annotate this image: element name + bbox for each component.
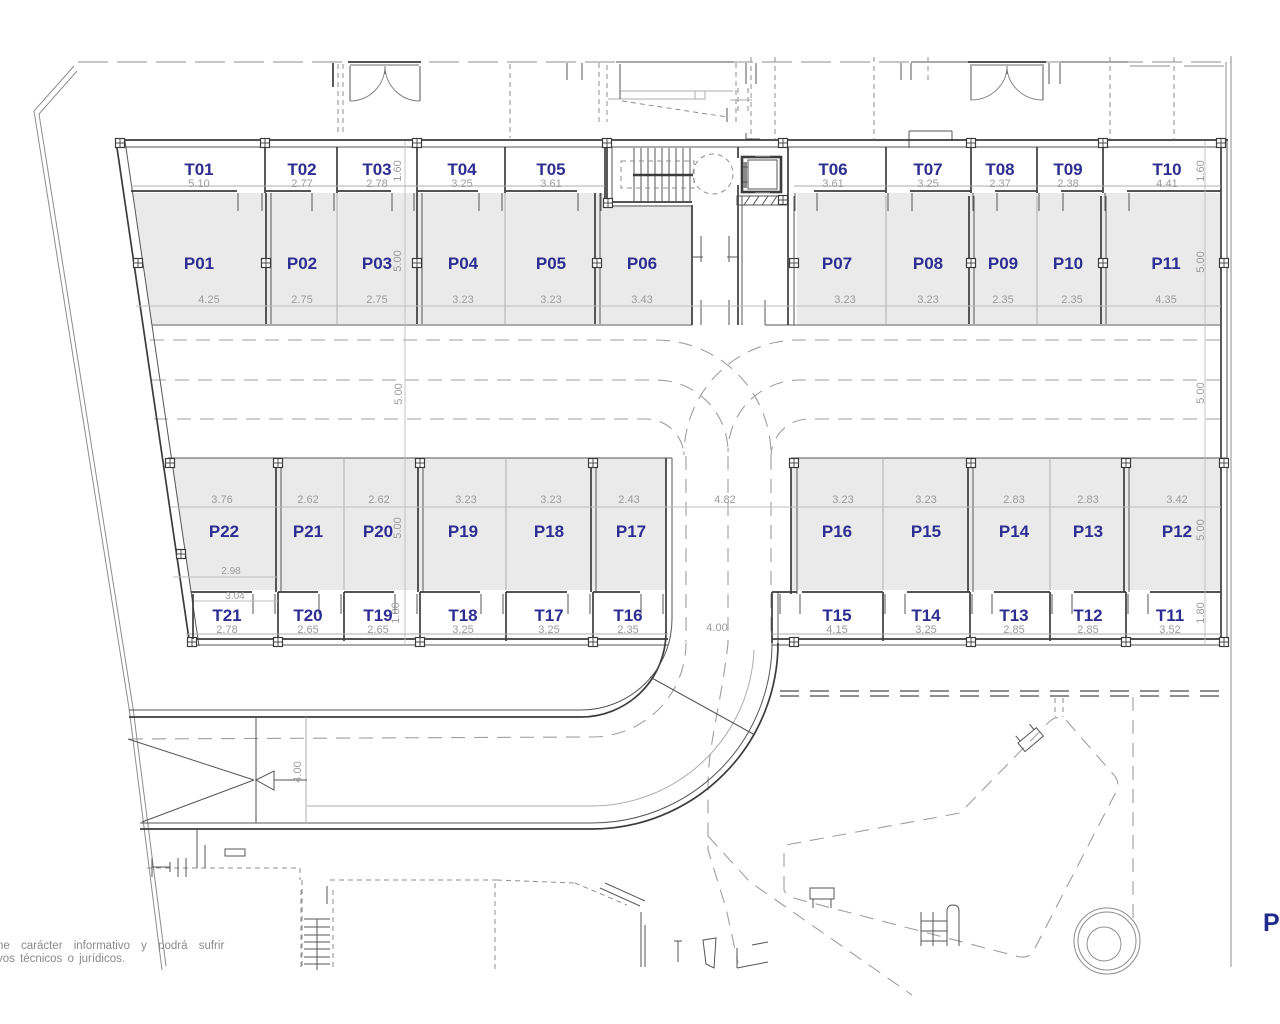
svg-text:4.35: 4.35 [1155, 294, 1176, 306]
svg-text:3.25: 3.25 [917, 178, 938, 190]
svg-text:P07: P07 [822, 254, 852, 273]
svg-text:3.25: 3.25 [452, 624, 473, 636]
svg-text:1.60: 1.60 [1195, 160, 1207, 181]
svg-text:3.25: 3.25 [451, 178, 472, 190]
svg-text:5.00: 5.00 [393, 383, 405, 404]
svg-text:T16: T16 [613, 606, 642, 625]
svg-text:2.35: 2.35 [617, 624, 638, 636]
svg-text:P22: P22 [209, 522, 239, 541]
svg-text:P04: P04 [448, 254, 479, 273]
svg-text:2.38: 2.38 [1057, 178, 1078, 190]
svg-text:1.80: 1.80 [1195, 602, 1207, 623]
svg-text:2.75: 2.75 [366, 294, 387, 306]
svg-text:2.77: 2.77 [291, 178, 312, 190]
svg-text:4.82: 4.82 [714, 494, 735, 506]
svg-text:2.98: 2.98 [221, 566, 241, 577]
svg-text:3.61: 3.61 [540, 178, 561, 190]
svg-text:P16: P16 [822, 522, 852, 541]
svg-text:2.65: 2.65 [297, 624, 318, 636]
svg-text:5.00: 5.00 [1195, 251, 1207, 272]
svg-text:1.60: 1.60 [392, 160, 404, 181]
svg-text:T11: T11 [1156, 606, 1184, 625]
svg-text:T05: T05 [536, 160, 565, 179]
svg-text:T15: T15 [822, 606, 851, 625]
svg-text:P03: P03 [362, 254, 392, 273]
svg-text:5.00: 5.00 [1195, 382, 1207, 403]
svg-text:2.83: 2.83 [1003, 494, 1024, 506]
svg-text:P01: P01 [184, 254, 214, 273]
svg-text:T01: T01 [184, 160, 213, 179]
svg-text:3.25: 3.25 [538, 624, 559, 636]
svg-text:5.00: 5.00 [392, 517, 404, 538]
svg-text:3.23: 3.23 [917, 294, 938, 306]
svg-text:P18: P18 [534, 522, 564, 541]
svg-text:3.52: 3.52 [1159, 624, 1180, 636]
svg-text:T20: T20 [293, 606, 322, 625]
svg-text:5.10: 5.10 [188, 178, 209, 190]
svg-text:3.23: 3.23 [540, 494, 561, 506]
svg-text:T12: T12 [1073, 606, 1102, 625]
svg-text:P11: P11 [1151, 254, 1180, 273]
svg-text:P14: P14 [999, 522, 1030, 541]
svg-text:3.23: 3.23 [832, 494, 853, 506]
svg-text:2.78: 2.78 [216, 624, 237, 636]
svg-text:2.75: 2.75 [291, 294, 312, 306]
svg-text:T08: T08 [985, 160, 1014, 179]
svg-text:P15: P15 [911, 522, 941, 541]
svg-text:2.35: 2.35 [992, 294, 1013, 306]
svg-text:1.80: 1.80 [390, 602, 402, 623]
svg-text:3.23: 3.23 [915, 494, 936, 506]
svg-text:T02: T02 [287, 160, 316, 179]
svg-text:5.00: 5.00 [392, 250, 404, 271]
svg-text:P05: P05 [536, 254, 566, 273]
svg-text:T04: T04 [447, 160, 477, 179]
svg-text:2.83: 2.83 [1077, 494, 1098, 506]
svg-text:T17: T17 [534, 606, 563, 625]
svg-text:3.23: 3.23 [455, 494, 476, 506]
svg-text:T03: T03 [362, 160, 391, 179]
svg-text:2.62: 2.62 [368, 494, 389, 506]
svg-text:ne carácter informativo y podr: ne carácter informativo y podrá sufrir [0, 940, 224, 952]
svg-text:T07: T07 [913, 160, 942, 179]
svg-text:P21: P21 [293, 522, 323, 541]
svg-text:P09: P09 [988, 254, 1018, 273]
svg-text:5.00: 5.00 [1195, 519, 1207, 540]
svg-text:4.25: 4.25 [198, 294, 219, 306]
svg-text:T19: T19 [363, 606, 392, 625]
svg-text:P: P [1263, 909, 1280, 937]
svg-text:3.23: 3.23 [452, 294, 473, 306]
svg-text:2.85: 2.85 [1003, 624, 1024, 636]
svg-text:T13: T13 [999, 606, 1028, 625]
svg-text:4.15: 4.15 [826, 624, 847, 636]
svg-text:2.43: 2.43 [618, 494, 639, 506]
svg-text:T10: T10 [1152, 160, 1181, 179]
svg-text:P02: P02 [287, 254, 317, 273]
svg-text:2.35: 2.35 [1061, 294, 1082, 306]
svg-text:2.85: 2.85 [1077, 624, 1098, 636]
svg-text:P17: P17 [616, 522, 646, 541]
svg-text:T18: T18 [448, 606, 477, 625]
svg-text:3.04: 3.04 [225, 591, 245, 602]
svg-text:P10: P10 [1053, 254, 1083, 273]
svg-text:4.00: 4.00 [706, 622, 727, 634]
svg-text:3.42: 3.42 [1166, 494, 1187, 506]
svg-text:T06: T06 [818, 160, 847, 179]
svg-text:2.37: 2.37 [989, 178, 1010, 190]
svg-text:P13: P13 [1073, 522, 1103, 541]
svg-text:P12: P12 [1162, 522, 1192, 541]
svg-text:P20: P20 [363, 522, 393, 541]
svg-text:T14: T14 [911, 606, 941, 625]
svg-text:vos técnicos o jurídicos.: vos técnicos o jurídicos. [0, 953, 125, 965]
svg-text:4.41: 4.41 [1156, 178, 1177, 190]
svg-text:3.23: 3.23 [540, 294, 561, 306]
svg-text:T21: T21 [212, 606, 241, 625]
svg-text:P08: P08 [913, 254, 943, 273]
svg-text:3.76: 3.76 [211, 494, 232, 506]
svg-text:P06: P06 [627, 254, 657, 273]
svg-text:3.25: 3.25 [915, 624, 936, 636]
svg-text:3.61: 3.61 [822, 178, 843, 190]
svg-text:2.78: 2.78 [366, 178, 387, 190]
svg-text:2.62: 2.62 [297, 494, 318, 506]
svg-text:4.00: 4.00 [292, 761, 304, 782]
svg-text:3.23: 3.23 [834, 294, 855, 306]
svg-text:T09: T09 [1053, 160, 1082, 179]
svg-text:P19: P19 [448, 522, 478, 541]
svg-text:2.65: 2.65 [367, 624, 388, 636]
svg-text:3.43: 3.43 [631, 294, 652, 306]
